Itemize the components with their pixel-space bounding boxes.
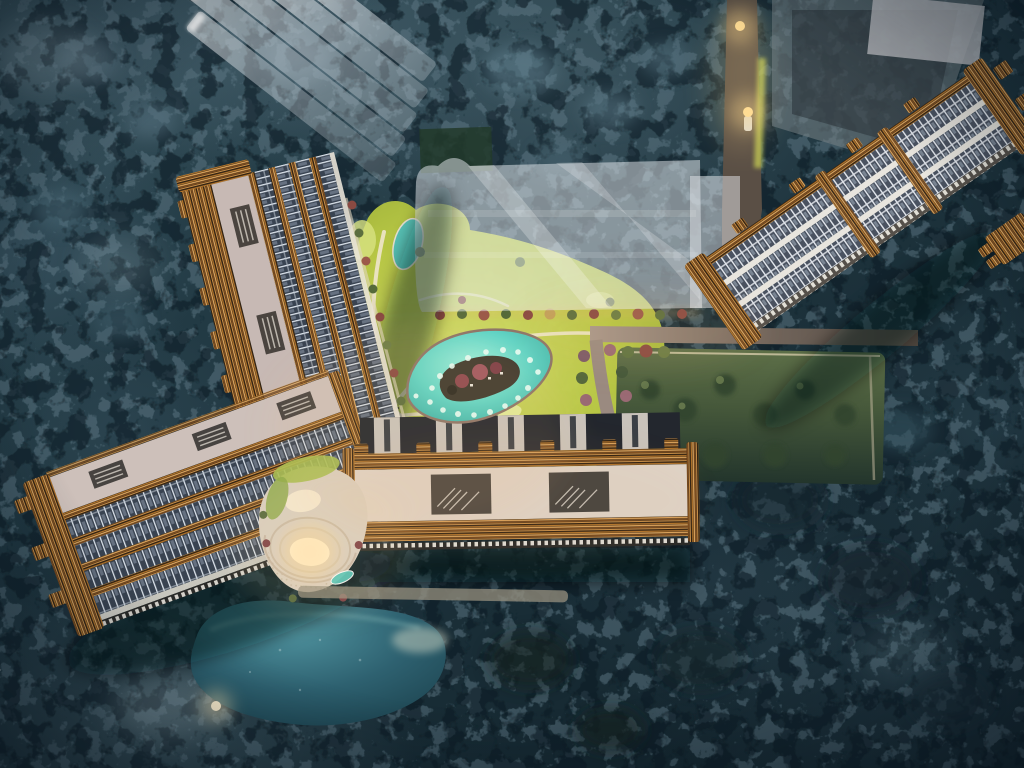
render-overlay [0,0,1024,768]
vignette [0,0,1024,768]
aerial-night-render [0,0,1024,768]
